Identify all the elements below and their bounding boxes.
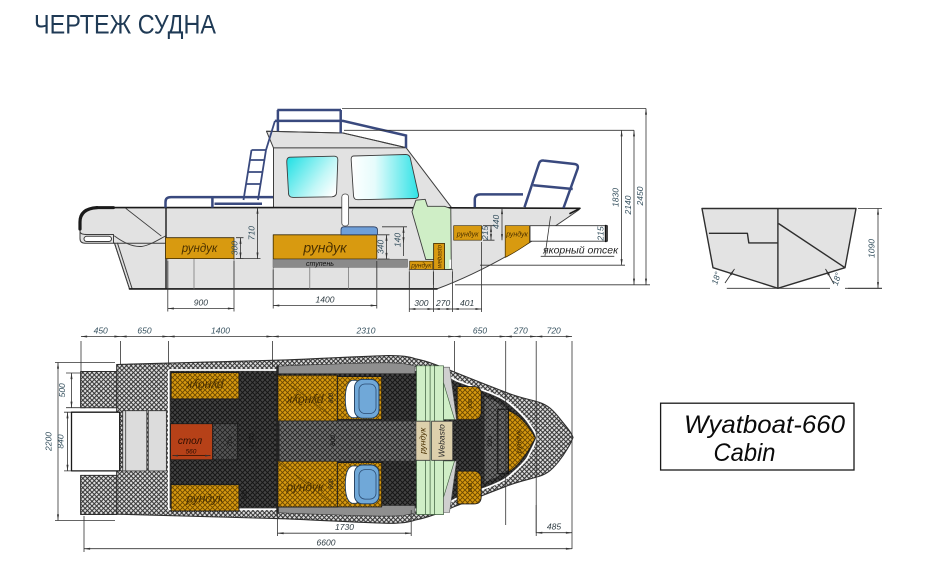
svg-text:6600: 6600	[317, 538, 336, 548]
svg-text:500: 500	[57, 383, 67, 397]
svg-text:стол: стол	[178, 436, 203, 447]
svg-text:1470: 1470	[249, 433, 256, 448]
svg-text:600: 600	[330, 435, 337, 446]
svg-text:ЧЕРТЕЖ СУДНА: ЧЕРТЕЖ СУДНА	[34, 10, 216, 40]
svg-text:рундук: рундук	[456, 231, 479, 239]
svg-text:300: 300	[243, 489, 249, 500]
svg-text:рундук: рундук	[285, 394, 324, 408]
svg-text:140: 140	[393, 233, 403, 247]
svg-text:720: 720	[547, 326, 561, 336]
svg-text:рундук: рундук	[505, 231, 528, 239]
svg-text:840: 840	[56, 434, 66, 448]
svg-text:700: 700	[228, 436, 234, 447]
svg-text:Webasto: Webasto	[437, 424, 447, 458]
svg-text:рундук: рундук	[185, 379, 224, 393]
svg-text:2450: 2450	[635, 186, 645, 206]
svg-text:650: 650	[473, 326, 487, 336]
svg-text:1400: 1400	[316, 295, 335, 305]
svg-text:600: 600	[468, 482, 474, 492]
svg-text:920: 920	[487, 436, 494, 447]
svg-text:рундук: рундук	[302, 240, 348, 256]
svg-text:300: 300	[414, 298, 428, 308]
svg-text:485: 485	[547, 522, 561, 532]
svg-text:600: 600	[329, 478, 335, 489]
svg-text:300: 300	[230, 241, 240, 255]
svg-text:1830: 1830	[611, 188, 621, 207]
svg-text:рундук: рундук	[285, 480, 324, 494]
svg-text:215: 215	[480, 226, 490, 241]
svg-text:рундук: рундук	[185, 492, 224, 506]
svg-text:215: 215	[596, 226, 606, 241]
svg-text:webasto: webasto	[437, 244, 444, 268]
svg-text:2140: 2140	[623, 195, 633, 215]
svg-text:560: 560	[186, 449, 197, 456]
svg-text:якорный отсек: якорный отсек	[542, 245, 619, 257]
svg-text:2200: 2200	[44, 432, 54, 452]
svg-text:1730: 1730	[335, 522, 354, 532]
svg-text:рундук: рундук	[418, 427, 428, 455]
svg-text:ступень: ступень	[306, 261, 334, 268]
svg-text:Cabin: Cabin	[714, 439, 776, 467]
svg-text:900: 900	[194, 298, 208, 308]
svg-text:440: 440	[491, 215, 501, 229]
svg-text:270: 270	[435, 298, 450, 308]
svg-text:Wyatboat-660: Wyatboat-660	[684, 411, 845, 439]
svg-text:340: 340	[376, 240, 386, 254]
svg-text:650: 650	[137, 326, 151, 336]
svg-text:401: 401	[460, 298, 474, 308]
svg-text:2310: 2310	[356, 326, 376, 336]
svg-text:270: 270	[513, 326, 528, 336]
svg-text:450: 450	[94, 326, 108, 336]
svg-text:рундук: рундук	[410, 262, 432, 270]
svg-text:600: 600	[329, 392, 335, 403]
svg-text:1400: 1400	[211, 326, 230, 336]
svg-text:рундук: рундук	[514, 429, 523, 454]
svg-text:710: 710	[247, 226, 257, 240]
svg-text:рундук: рундук	[181, 243, 218, 255]
svg-text:1090: 1090	[867, 239, 877, 258]
svg-text:600: 600	[468, 398, 474, 408]
